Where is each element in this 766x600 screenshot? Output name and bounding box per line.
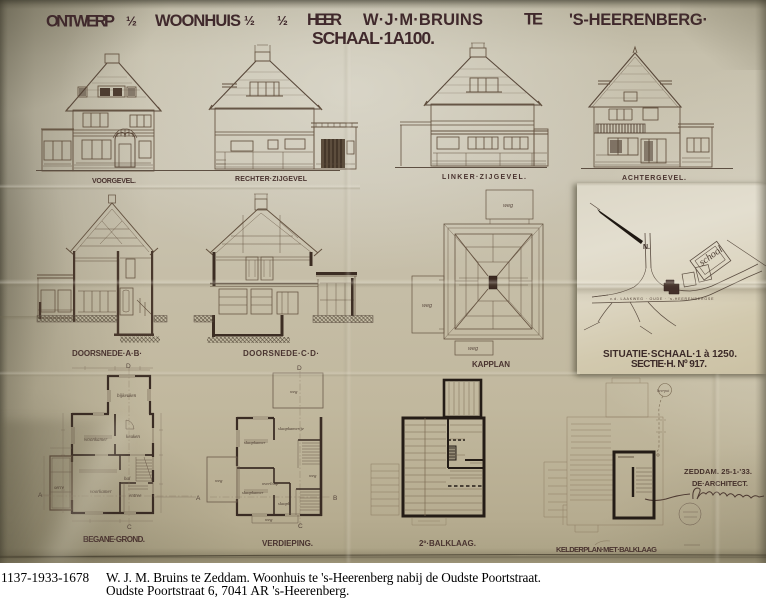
svg-text:'S-HEERENBERG·: 'S-HEERENBERG· xyxy=(569,11,708,29)
svg-text:C: C xyxy=(127,524,132,531)
svg-text:school: school xyxy=(697,244,725,268)
svg-text:BEGANE·GROND.: BEGANE·GROND. xyxy=(83,535,145,544)
svg-text:HEER: HEER xyxy=(307,11,342,29)
svg-text:voorkamer: voorkamer xyxy=(90,490,112,495)
svg-text:D: D xyxy=(126,363,131,370)
svg-text:slaapkamertje: slaapkamertje xyxy=(278,426,304,431)
svg-text:VERDIEPING.: VERDIEPING. xyxy=(262,539,313,548)
svg-text:TE: TE xyxy=(524,11,543,29)
svg-text:weg: weg xyxy=(422,303,433,309)
svg-text:weg: weg xyxy=(503,203,514,209)
svg-text:slaapkamer: slaapkamer xyxy=(244,440,266,445)
svg-text:serre: serre xyxy=(54,486,65,491)
svg-text:½: ½ xyxy=(244,13,255,28)
svg-text:DOORSNEDE·C·D·: DOORSNEDE·C·D· xyxy=(243,349,319,358)
svg-text:½: ½ xyxy=(126,14,137,29)
svg-text:WOONHUIS: WOONHUIS xyxy=(155,12,241,30)
svg-text:2º·BALKLAAG.: 2º·BALKLAAG. xyxy=(419,539,476,548)
svg-text:weg: weg xyxy=(290,389,298,394)
svg-text:N.: N. xyxy=(643,244,650,251)
svg-text:beerput: beerput xyxy=(657,388,670,393)
svg-text:keuken: keuken xyxy=(126,435,140,440)
svg-text:SECTIE·H. Nº 917.: SECTIE·H. Nº 917. xyxy=(631,359,707,370)
svg-text:bijkeuken: bijkeuken xyxy=(117,394,137,399)
svg-text:C: C xyxy=(298,523,303,530)
svg-text:VOORGEVEL.: VOORGEVEL. xyxy=(92,178,136,185)
svg-text:v.d. LAAKWEG · OUDE · 's-HEERE: v.d. LAAKWEG · OUDE · 's-HEERENBERGSE xyxy=(610,297,714,301)
svg-text:entree: entree xyxy=(129,494,142,499)
svg-text:ACHTERGEVEL.: ACHTERGEVEL. xyxy=(622,175,686,182)
svg-text:ONTWERP: ONTWERP xyxy=(46,13,115,31)
svg-text:ZEDDAM. 25-1-'33.: ZEDDAM. 25-1-'33. xyxy=(684,467,752,476)
svg-text:½: ½ xyxy=(277,13,288,28)
svg-text:DOORSNEDE·A·B·: DOORSNEDE·A·B· xyxy=(72,349,142,358)
svg-text:woonkamer: woonkamer xyxy=(84,438,107,443)
svg-text:weg: weg xyxy=(309,473,317,478)
svg-text:weg: weg xyxy=(265,517,273,522)
svg-text:hal: hal xyxy=(124,477,131,482)
svg-text:B: B xyxy=(333,495,337,502)
svg-text:slaapkamer: slaapkamer xyxy=(242,490,264,495)
svg-text:W·J·M·BRUINS: W·J·M·BRUINS xyxy=(363,11,483,29)
svg-text:weg: weg xyxy=(468,346,479,352)
svg-text:LINKER·ZIJGEVEL.: LINKER·ZIJGEVEL. xyxy=(442,174,526,181)
svg-text:SCHAAL·1A100.: SCHAAL·1A100. xyxy=(312,28,435,48)
svg-text:overloop: overloop xyxy=(262,481,279,486)
svg-text:DE·ARCHITECT.: DE·ARCHITECT. xyxy=(692,479,748,488)
svg-text:KELDERPLAN·MET·BALKLAAG: KELDERPLAN·MET·BALKLAAG xyxy=(556,545,657,554)
svg-text:D: D xyxy=(297,365,302,372)
svg-text:A: A xyxy=(38,492,43,499)
svg-text:RECHTER·ZIJGEVEL: RECHTER·ZIJGEVEL xyxy=(235,176,308,183)
svg-text:KAPPLAN: KAPPLAN xyxy=(472,360,510,369)
svg-text:slaapk.: slaapk. xyxy=(278,501,291,506)
svg-text:A: A xyxy=(196,495,201,502)
svg-text:weg: weg xyxy=(215,478,223,483)
